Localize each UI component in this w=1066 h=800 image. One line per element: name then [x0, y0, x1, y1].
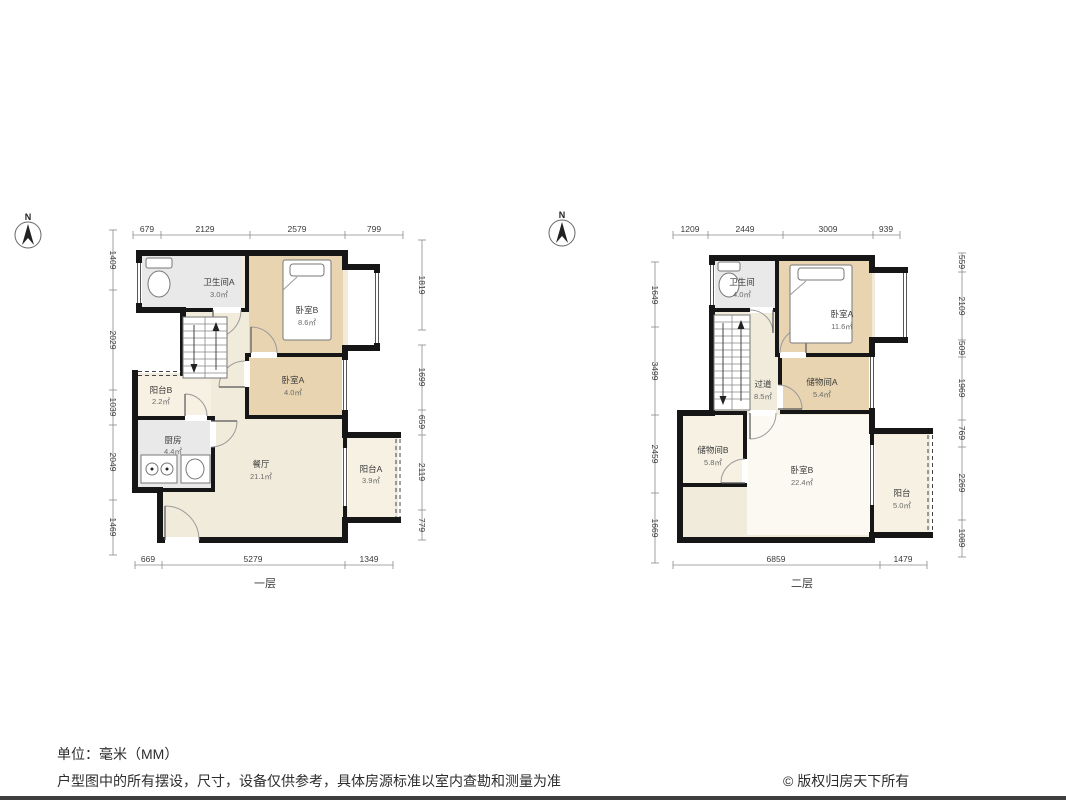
dim-label: 679	[140, 224, 154, 234]
north-label: N	[559, 210, 566, 220]
bedroom-a-area: 4.0㎡	[284, 388, 302, 397]
floor1-dims-top: 679 2129 2579 799	[133, 224, 403, 239]
storage-b-area: 5.8㎡	[704, 458, 722, 467]
floor2-dims-right: 559 2109 509 1969 769 2269 1089	[957, 253, 967, 557]
north-label: N	[25, 212, 32, 222]
dim-label: 5279	[244, 554, 263, 564]
dim-label: 1969	[957, 379, 967, 398]
balcony-a-label: 阳台A	[360, 464, 383, 474]
dim-label: 559	[957, 255, 967, 269]
balcony-a-area: 3.9㎡	[362, 476, 380, 485]
north-compass-floor1: N	[6, 204, 50, 256]
hallway-label: 过道	[754, 379, 772, 389]
bedroom-a2-label: 卧室A	[831, 309, 854, 319]
dim-label: 2269	[957, 474, 967, 493]
bathroom-a-label: 卫生间A	[203, 277, 235, 287]
bay-window-area	[348, 270, 374, 345]
dim-label: 1409	[108, 251, 118, 270]
dim-label: 2449	[736, 224, 755, 234]
dim-label: 1479	[894, 554, 913, 564]
dim-label: 2579	[288, 224, 307, 234]
bedroom-a-label: 卧室A	[282, 375, 305, 385]
hallway-area: 8.5㎡	[754, 392, 772, 401]
room-balcony2	[874, 435, 928, 533]
dim-label: 2459	[650, 445, 660, 464]
floor1-dims-left: 1409 2029 1039 2049 1469	[108, 230, 118, 555]
floor1-dims-right: 1819 1699 659 2119 779	[417, 240, 427, 540]
balcony2-area: 5.0㎡	[893, 501, 911, 510]
bedroom-a2-area: 11.6㎡	[831, 322, 853, 331]
dim-label: 3009	[819, 224, 838, 234]
unit-note: 单位：毫米（MM）	[57, 744, 178, 764]
bathroom-label: 卫生间	[729, 277, 755, 287]
bedroom-b2-area: 22.4㎡	[791, 478, 814, 487]
north-arrow-icon	[22, 224, 34, 245]
kitchen-area: 4.4㎡	[164, 447, 182, 456]
floorplan-floor2: 卫生间 4.0㎡ 卧室A 11.6㎡ 过道 8.5㎡ 储物间A 5.4㎡ 储物间…	[630, 205, 985, 595]
dim-label: 939	[879, 224, 893, 234]
room-balcony-b	[138, 376, 211, 416]
floor2-dims-top: 1209 2449 3009 939	[673, 224, 900, 239]
floor2-dims-left: 1649 3499 2459 1669	[650, 262, 660, 563]
stairs-icon	[714, 315, 750, 410]
room-bedroom-b2	[747, 415, 870, 535]
dim-label: 1699	[417, 368, 427, 387]
north-compass-floor2: N	[540, 202, 584, 254]
storage-a-label: 储物间A	[806, 377, 838, 387]
storage-b-label: 储物间B	[697, 445, 729, 455]
dim-label: 2109	[957, 297, 967, 316]
kitchen-label: 厨房	[164, 435, 181, 445]
floor1-dims-bottom: 669 5279 1349	[135, 554, 393, 569]
bedroom-b2-label: 卧室B	[791, 465, 814, 475]
floor1-label: 一层	[254, 577, 276, 590]
dim-label: 6859	[767, 554, 786, 564]
bathroom-a-area: 3.0㎡	[210, 290, 228, 299]
sink-icon	[181, 455, 210, 483]
balcony-b-label: 阳台B	[150, 385, 173, 395]
dim-label: 1819	[417, 276, 427, 295]
dim-label: 2049	[108, 453, 118, 472]
storage-a-area: 5.4㎡	[813, 390, 831, 399]
bed-icon	[283, 260, 331, 340]
dim-label: 1349	[360, 554, 379, 564]
bed-icon	[790, 265, 852, 343]
dim-label: 509	[957, 341, 967, 355]
dim-label: 1089	[957, 529, 967, 548]
dim-label: 2129	[196, 224, 215, 234]
floor2-label: 二层	[791, 577, 813, 590]
stove-icon	[141, 455, 177, 483]
north-arrow-icon	[556, 222, 568, 243]
dim-label: 799	[367, 224, 381, 234]
balcony2-label: 阳台	[893, 488, 910, 498]
disclaimer-note: 户型图中的所有摆设，尺寸，设备仅供参考，具体房源标准以室内查勘和测量为准	[57, 771, 561, 791]
dim-label: 669	[141, 554, 155, 564]
dim-label: 2029	[108, 331, 118, 350]
balcony-b-area: 2.2㎡	[152, 397, 170, 406]
dim-label: 1209	[681, 224, 700, 234]
dim-label: 3499	[650, 362, 660, 381]
toilet-icon	[146, 258, 172, 297]
bedroom-b-label: 卧室B	[296, 305, 319, 315]
copyright-note: © 版权归房天下所有	[783, 771, 909, 791]
stairs-icon	[183, 317, 227, 378]
floor2-dims-bottom: 6859 1479	[673, 554, 927, 569]
dining-area: 21.1㎡	[250, 472, 273, 481]
dim-label: 1469	[108, 518, 118, 537]
bay-window-area2	[875, 273, 902, 337]
dim-label: 1669	[650, 519, 660, 538]
floorplan-floor1: 卫生间A 3.0㎡ 卧室B 8.6㎡ 卧室A 4.0㎡ 阳台B 2.2㎡ 厨房 …	[95, 205, 440, 595]
bedroom-b-area: 8.6㎡	[298, 318, 316, 327]
dim-label: 1649	[650, 286, 660, 305]
bottom-divider	[0, 796, 1066, 800]
dim-label: 769	[957, 426, 967, 440]
dim-label: 1039	[108, 398, 118, 417]
bathroom-area: 4.0㎡	[733, 290, 751, 299]
room-bedroom-a	[249, 357, 343, 415]
dining-label: 餐厅	[252, 459, 270, 469]
dim-label: 779	[417, 518, 427, 532]
dim-label: 659	[417, 415, 427, 429]
dim-label: 2119	[417, 463, 427, 482]
